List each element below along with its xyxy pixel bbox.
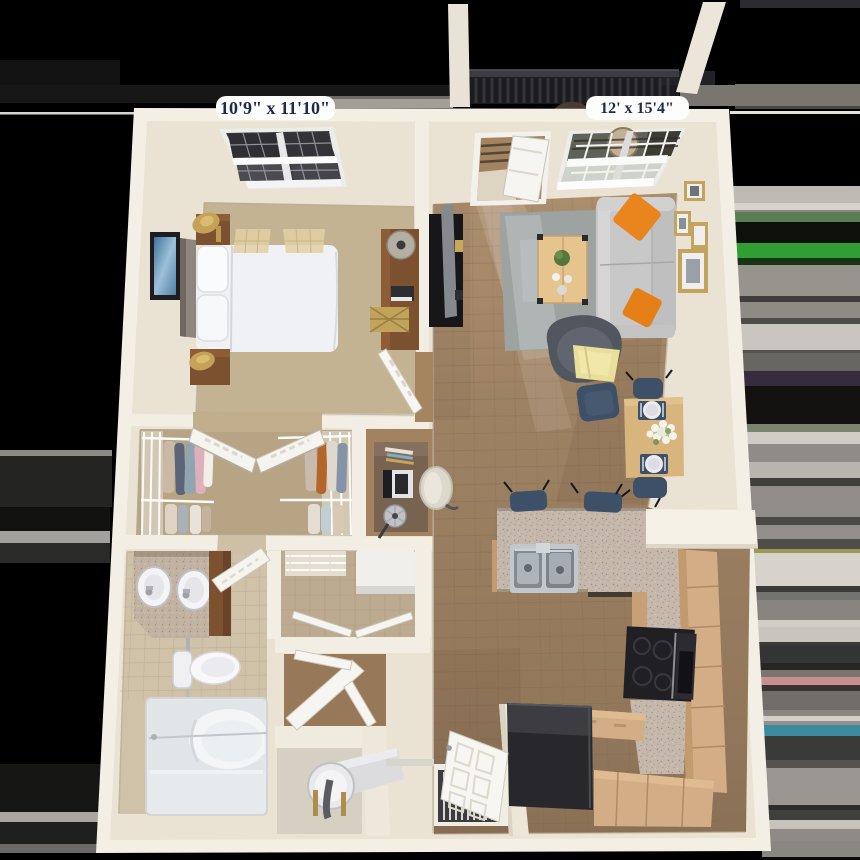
svg-text:12' x 15'4": 12' x 15'4" (600, 100, 674, 117)
svg-text:10'9" x 11'10": 10'9" x 11'10" (220, 98, 330, 118)
